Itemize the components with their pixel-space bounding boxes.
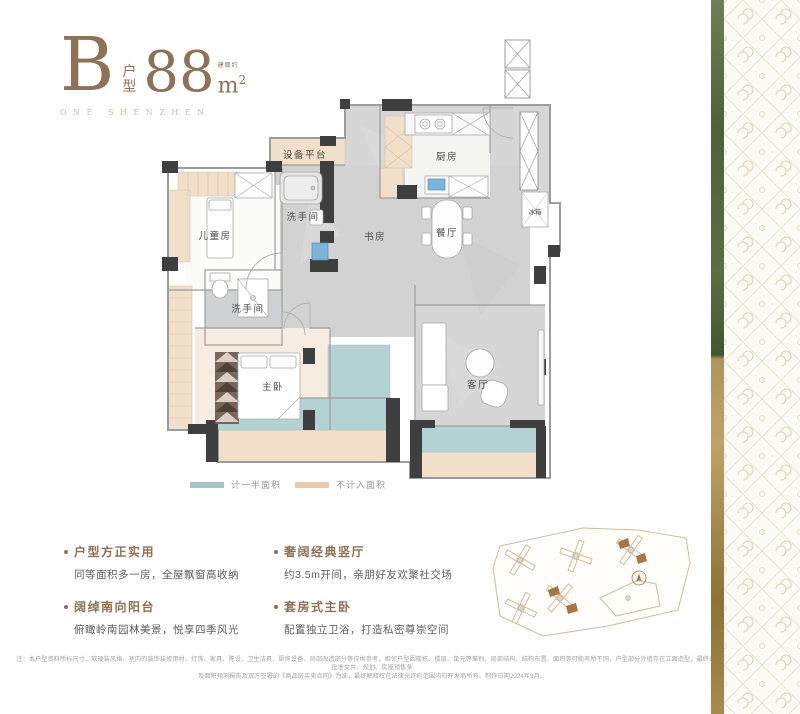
room-label-bathroom-1: 洗手间 — [286, 211, 319, 223]
bullet-dot-icon — [274, 605, 278, 609]
feature-body: 同等面积多一房，全屋飘窗高收纳 — [74, 567, 264, 582]
feature-body: 配置独立卫浴，打造私密尊崇空间 — [284, 622, 474, 637]
feature-body: 约3.5m开间，亲朋好友欢聚社交场 — [284, 567, 474, 582]
room-label-master-bedroom: 主卧 — [262, 381, 284, 393]
room-label-kids-room: 儿童房 — [198, 230, 231, 242]
room-label-equipment-platform: 设备平台 — [283, 149, 327, 161]
feature-heading: 奢阔经典竖厅 — [284, 543, 365, 560]
edge-ribbon — [711, 0, 724, 714]
room-label-kitchen: 厨房 — [436, 151, 458, 163]
feature-body: 俯瞰岭南园林美景，悦享四季风光 — [74, 622, 264, 637]
legend-not-counted: 不计入面积 — [295, 478, 386, 491]
feature-suite-master: 套房式主卧 配置独立卫浴，打造私密尊崇空间 — [274, 598, 474, 637]
bullet-dot-icon — [274, 550, 278, 554]
feature-south-balcony: 阔绰南向阳台 俯瞰岭南园林美景，悦享四季风光 — [64, 598, 264, 637]
room-label-study: 书房 — [364, 231, 386, 243]
room-label-dining-room: 餐厅 — [436, 227, 458, 239]
unit-type-char-1: 户 — [122, 64, 137, 79]
floorplan-poster: { "title": { "letter": "B", "type_chars"… — [0, 0, 800, 714]
feature-squarish-layout: 户型方正实用 同等面积多一房，全屋飘窗高收纳 — [64, 543, 264, 582]
disclaimer-line-1: 注：本户型资料所标尺寸、软硬装风格、室内的装饰装修用材、灯饰、家具、陈设、卫生洁… — [15, 655, 729, 672]
decor-pattern-column — [724, 0, 800, 714]
room-label-living-room: 客厅 — [467, 379, 489, 391]
feature-heading: 套房式主卧 — [284, 598, 352, 615]
legend-half-area: 计一半面积 — [190, 478, 281, 491]
legend-tan-swatch — [295, 482, 329, 488]
room-label-bathroom-2: 洗手间 — [231, 303, 264, 315]
legend-teal-swatch — [190, 482, 224, 488]
room-label-fridge: 冰箱 — [529, 207, 543, 216]
feature-heading: 阔绰南向阳台 — [74, 598, 155, 615]
feature-classic-hall: 奢阔经典竖厅 约3.5m开间，亲朋好友欢聚社交场 — [274, 543, 474, 582]
unit-type-letter: B — [60, 34, 114, 96]
legend-not-counted-label: 不计入面积 — [336, 478, 386, 491]
unit-type-char-2: 型 — [122, 79, 137, 94]
disclaimer-line-2: 及面积预测报告及双方签署的《商品房买卖合同》为准，最终解释权在法律允许的范围内归… — [15, 672, 729, 681]
disclaimer: 注：本户型资料所标尺寸、软硬装风格、室内的装饰装修用材、灯饰、家具、陈设、卫生洁… — [15, 655, 729, 681]
unit-type-label: 户 型 — [122, 64, 137, 94]
kitchen-sink — [428, 179, 445, 190]
feature-heading: 户型方正实用 — [74, 543, 155, 560]
bullet-dot-icon — [64, 605, 68, 609]
washing-machine — [312, 243, 328, 260]
bullet-dot-icon — [64, 550, 68, 554]
floorplan-drawing: 设备平台 儿童房 洗手间 书房 厨房 餐厅 冰箱 洗手间 主卧 客厅 — [160, 35, 572, 485]
legend-half-area-label: 计一半面积 — [231, 478, 281, 491]
site-plan — [488, 518, 703, 648]
site-boundary — [493, 528, 690, 636]
